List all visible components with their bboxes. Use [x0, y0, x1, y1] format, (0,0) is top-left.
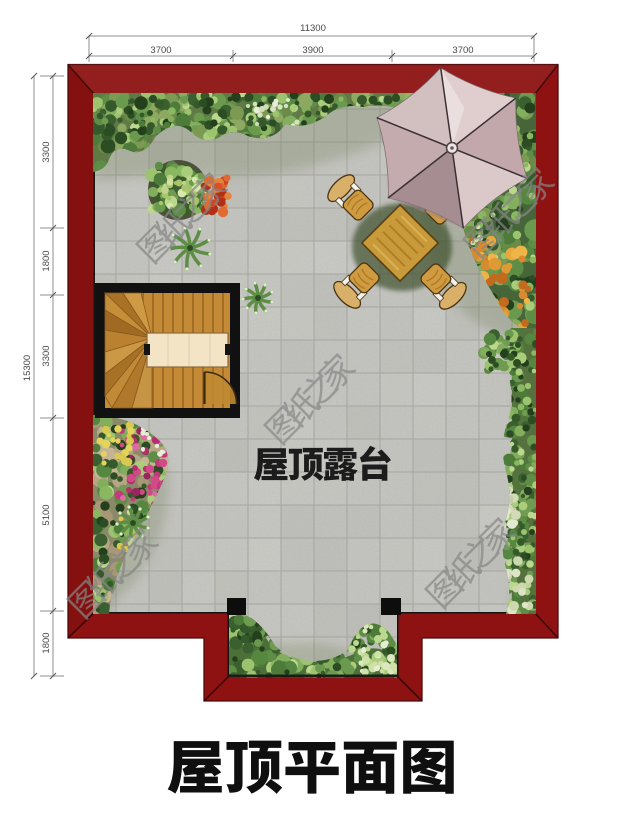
svg-text:5100: 5100 — [41, 504, 52, 525]
svg-text:15300: 15300 — [22, 355, 33, 381]
svg-text:3900: 3900 — [302, 45, 323, 56]
svg-text:3700: 3700 — [452, 45, 473, 56]
svg-text:1800: 1800 — [41, 250, 52, 271]
svg-text:3700: 3700 — [150, 45, 171, 56]
svg-text:1800: 1800 — [41, 632, 52, 653]
svg-text:3300: 3300 — [41, 345, 52, 366]
svg-text:11300: 11300 — [300, 23, 326, 34]
svg-text:3300: 3300 — [41, 141, 52, 162]
